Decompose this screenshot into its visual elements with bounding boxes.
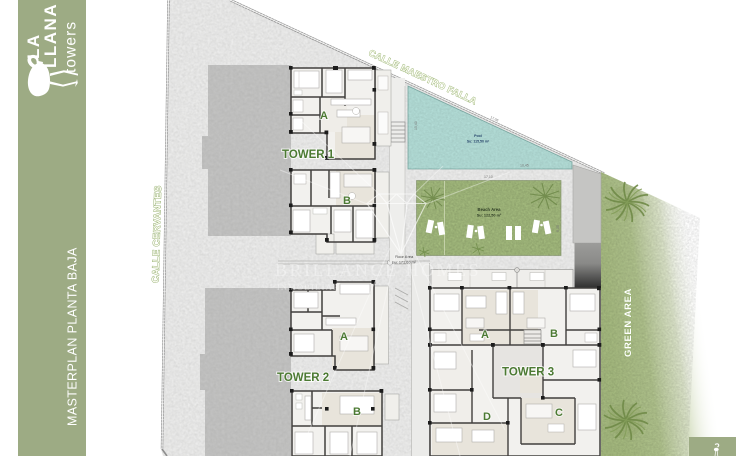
svg-text:Su: 122,50 m²: Su: 122,50 m² [477,214,502,218]
svg-text:MASTERPLAN PLANTA BAJA: MASTERPLAN PLANTA BAJA [66,247,80,426]
svg-text:CALLE CERVANTES: CALLE CERVANTES [151,185,165,283]
svg-text:B: B [343,195,351,207]
svg-text:LLANA: LLANA [41,3,60,68]
svg-text:A: A [340,331,348,343]
svg-text:10,45: 10,45 [520,164,529,168]
svg-text:A: A [320,110,328,122]
svg-text:D: D [483,411,491,423]
svg-text:Floor Area: Floor Area [395,254,414,259]
svg-text:B: B [353,406,361,418]
svg-text:TOWER 1: TOWER 1 [282,149,335,161]
svg-text:Beach Area: Beach Area [478,207,502,212]
svg-text:GREEN AREA: GREEN AREA [623,288,634,357]
svg-text:C: C [555,407,563,419]
svg-text:A: A [481,329,489,341]
svg-text:9,30: 9,30 [556,225,560,232]
svg-text:17,10: 17,10 [484,175,493,179]
svg-text:BRILLANCE HOMES: BRILLANCE HOMES [275,260,481,280]
svg-text:INMOBILIARIA: INMOBILIARIA [277,282,351,292]
svg-text:B: B [550,328,558,340]
svg-text:Su: 115,50 m²: Su: 115,50 m² [467,140,490,144]
svg-text:15,40: 15,40 [414,121,418,130]
svg-text:towers: towers [63,21,80,73]
svg-text:Pool: Pool [474,134,482,138]
svg-text:TOWER 3: TOWER 3 [502,367,554,379]
svg-text:TOWER 2: TOWER 2 [277,372,329,384]
